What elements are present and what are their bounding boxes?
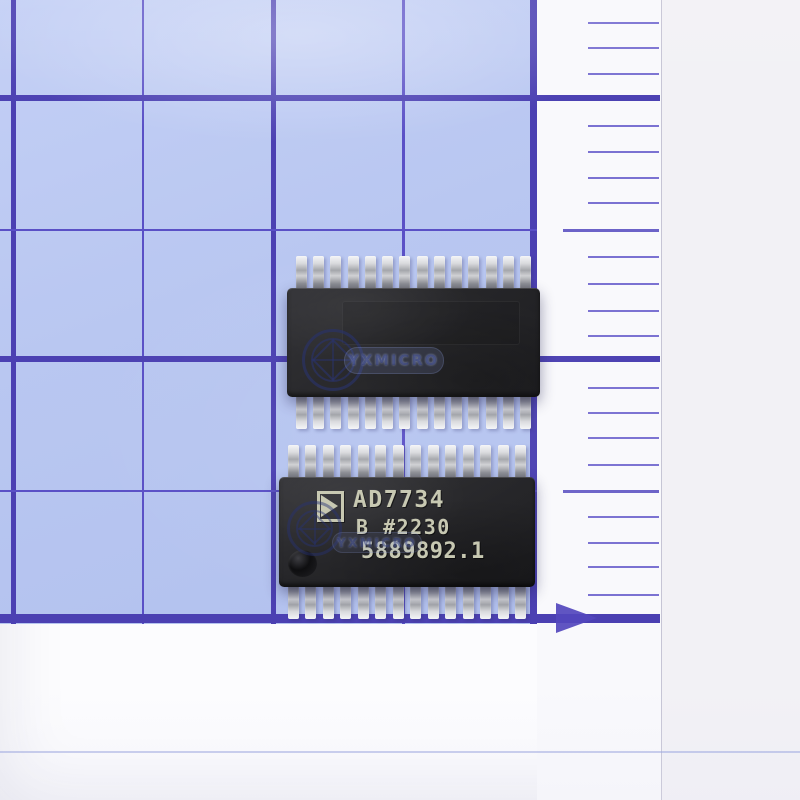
chip-pin [365, 256, 376, 290]
chip-pin [296, 256, 307, 290]
chip-pin [503, 256, 514, 290]
chip-pin [520, 256, 531, 290]
chip-pin [503, 395, 514, 429]
chip-pin [340, 445, 351, 479]
grade-datecode-text: B #2230 [356, 515, 451, 539]
chip-body: AD7734 B #2230 5889892.1 [279, 477, 535, 587]
chip-pin [417, 395, 428, 429]
chip-pin [358, 445, 369, 479]
mold-mark [342, 301, 520, 345]
chip-pin [330, 256, 341, 290]
chip-pin [305, 445, 316, 479]
chip-pin [486, 256, 497, 290]
chip-pin [417, 256, 428, 290]
chip-pin [348, 395, 359, 429]
chip-pin [486, 395, 497, 429]
chip-pin [480, 445, 491, 479]
chip-pin [410, 445, 421, 479]
chip-pin [305, 585, 316, 619]
part-number-text: AD7734 [353, 487, 445, 513]
chip-pin [480, 585, 491, 619]
chip-pin [463, 445, 474, 479]
chip-pin [434, 256, 445, 290]
lot-number-text: 5889892.1 [361, 539, 485, 564]
chip-pin [428, 585, 439, 619]
chip-pin [382, 395, 393, 429]
chip-pin [382, 256, 393, 290]
chip-pin [410, 585, 421, 619]
chip-pin [313, 395, 324, 429]
chip-pin [468, 395, 479, 429]
chip-pin [330, 395, 341, 429]
chip-pin [498, 585, 509, 619]
chip-pin [375, 445, 386, 479]
chip-pin [340, 585, 351, 619]
chip-pin [434, 395, 445, 429]
chip-pin [323, 585, 334, 619]
chip-pin [445, 585, 456, 619]
chip-pin [468, 256, 479, 290]
chip-pin [498, 445, 509, 479]
chip-pin [463, 585, 474, 619]
chip-pin [428, 445, 439, 479]
chip-pin [393, 445, 404, 479]
analog-devices-triangle-icon [317, 491, 344, 522]
chip-pin [520, 395, 531, 429]
chip-pin [399, 395, 410, 429]
chip-body [287, 288, 540, 397]
chip-pin [515, 585, 526, 619]
chip-pin [288, 445, 299, 479]
photo-of-ic-chips: AD7734 B #2230 5889892.1 YXMICRO YXMICRO [0, 0, 800, 800]
chip-pin [399, 256, 410, 290]
chip-pin [393, 585, 404, 619]
pin1-dimple [288, 550, 317, 577]
chip-pin [348, 256, 359, 290]
chip-pin [323, 445, 334, 479]
chip-pin [451, 395, 462, 429]
chip-pin [288, 585, 299, 619]
chip-pin [451, 256, 462, 290]
chip-pin [296, 395, 307, 429]
chip-pin [313, 256, 324, 290]
chip-pin [445, 445, 456, 479]
chip-pin [365, 395, 376, 429]
chip-pin [515, 445, 526, 479]
chip-pin [358, 585, 369, 619]
chip-pin [375, 585, 386, 619]
triangle-glyph [321, 495, 338, 517]
